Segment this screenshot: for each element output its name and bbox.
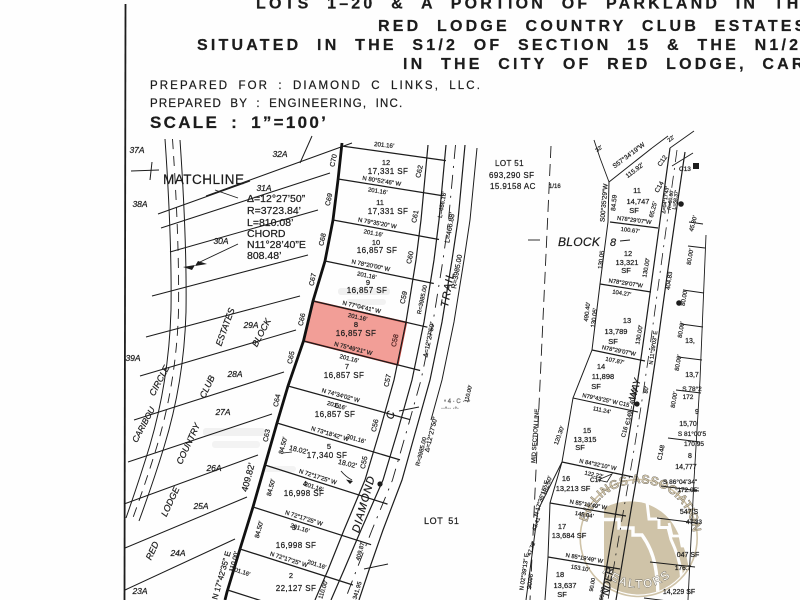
svg-text:38A: 38A xyxy=(132,199,147,209)
svg-text:16,857 SF: 16,857 SF xyxy=(347,286,388,295)
svg-text:11: 11 xyxy=(376,198,384,207)
svg-text:SITUATED IN THE S1/2 OF SECTIO: SITUATED IN THE S1/2 OF SECTION 15 & THE… xyxy=(197,37,800,54)
svg-text:16,857 SF: 16,857 SF xyxy=(315,410,356,419)
svg-text:12: 12 xyxy=(624,249,632,258)
svg-text:693,290 SF: 693,290 SF xyxy=(489,171,534,180)
svg-text:RED LODGE COUNTRY CLUB ESTATES: RED LODGE COUNTRY CLUB ESTATES xyxy=(378,18,800,35)
svg-text:BLOCK: BLOCK xyxy=(558,235,601,249)
svg-text:8: 8 xyxy=(610,237,617,249)
svg-text:13,789: 13,789 xyxy=(605,327,628,336)
svg-text:47’33: 47’33 xyxy=(686,519,702,526)
svg-text:MATCHLINE: MATCHLINE xyxy=(163,172,245,187)
svg-text:14: 14 xyxy=(597,362,605,371)
svg-text:5: 5 xyxy=(327,442,331,451)
svg-text:172.05’: 172.05’ xyxy=(677,487,699,494)
svg-text:Δ=12°27’50”: Δ=12°27’50” xyxy=(247,193,306,205)
svg-text:S 78°2: S 78°2 xyxy=(682,385,702,393)
svg-text:7: 7 xyxy=(345,362,349,371)
svg-text:13,7: 13,7 xyxy=(685,372,699,379)
svg-text:SF: SF xyxy=(629,206,639,215)
svg-text:SCALE : 1”=100’: SCALE : 1”=100’ xyxy=(150,113,328,132)
svg-text:SF: SF xyxy=(557,590,567,599)
svg-text:PREPARED BY : ENGINEERING, INC: PREPARED BY : ENGINEERING, INC. xyxy=(150,98,403,110)
svg-text:S 86°04’34”: S 86°04’34” xyxy=(663,478,697,486)
svg-text:16,857 SF: 16,857 SF xyxy=(357,246,398,255)
svg-text:SF: SF xyxy=(591,382,601,391)
svg-text:13,: 13, xyxy=(685,338,695,345)
svg-text:29A: 29A xyxy=(242,320,258,330)
svg-text:C13: C13 xyxy=(679,166,691,173)
svg-text:14,777: 14,777 xyxy=(675,464,697,471)
svg-text:17,331 SF: 17,331 SF xyxy=(368,167,409,176)
svg-text:25A: 25A xyxy=(192,501,208,511)
svg-text:S 81°00’5: S 81°00’5 xyxy=(678,430,707,438)
svg-text:30A: 30A xyxy=(213,236,228,246)
svg-text:26A: 26A xyxy=(205,463,221,473)
svg-text:16,857 SF: 16,857 SF xyxy=(336,329,377,338)
svg-text:SF: SF xyxy=(621,266,631,275)
svg-text:12: 12 xyxy=(382,158,390,167)
svg-text:172: 172 xyxy=(683,394,694,401)
svg-text:15,70: 15,70 xyxy=(679,421,697,428)
svg-text:32A: 32A xyxy=(272,149,287,159)
svg-text:17: 17 xyxy=(558,522,566,531)
svg-text:15.9158 AC: 15.9158 AC xyxy=(490,182,536,191)
svg-text:31A: 31A xyxy=(256,183,271,193)
svg-text:170.95: 170.95 xyxy=(684,441,704,448)
svg-text:16,857 SF: 16,857 SF xyxy=(324,371,365,380)
svg-text:··•·· ·•·: ··•·· ·•· xyxy=(441,406,459,412)
svg-text:2: 2 xyxy=(289,571,293,580)
svg-text:84.59: 84.59 xyxy=(610,194,618,211)
svg-text:R=3723.84’: R=3723.84’ xyxy=(247,205,301,217)
svg-text:18: 18 xyxy=(556,570,564,579)
svg-text:8: 8 xyxy=(688,453,692,460)
svg-text:547 S: 547 S xyxy=(680,509,699,516)
svg-text:SF: SF xyxy=(608,337,618,346)
svg-text:176.7: 176.7 xyxy=(675,565,692,572)
svg-text:13,684 SF: 13,684 SF xyxy=(552,531,587,540)
svg-text:LOTS 1–20 & A PORTION OF PARKL: LOTS 1–20 & A PORTION OF PARKLAND IN TH xyxy=(256,0,800,13)
svg-text:PREPARED FOR : DIAMOND C LINKS: PREPARED FOR : DIAMOND C LINKS, LLC. xyxy=(150,80,482,92)
svg-text:SF: SF xyxy=(575,443,585,452)
svg-text:9: 9 xyxy=(695,409,699,416)
svg-text:8: 8 xyxy=(354,320,358,329)
svg-text:14,229 SF: 14,229 SF xyxy=(663,589,695,596)
svg-text:LOT 51: LOT 51 xyxy=(424,516,459,526)
svg-text:13,637: 13,637 xyxy=(554,581,577,590)
svg-text:11,898: 11,898 xyxy=(592,372,614,381)
svg-text:13: 13 xyxy=(623,316,631,325)
svg-text:24A: 24A xyxy=(169,548,185,558)
svg-text:28A: 28A xyxy=(226,369,242,379)
svg-text:23A: 23A xyxy=(131,586,147,596)
svg-text:39A: 39A xyxy=(125,353,140,363)
svg-text:27A: 27A xyxy=(214,407,230,417)
svg-text:LOT 51: LOT 51 xyxy=(495,159,524,168)
svg-text:16,998 SF: 16,998 SF xyxy=(276,541,317,550)
svg-text:808.48’: 808.48’ xyxy=(247,250,281,262)
svg-text:80’: 80’ xyxy=(644,386,651,394)
svg-text:14,747: 14,747 xyxy=(627,197,650,206)
svg-text:22,127 SF: 22,127 SF xyxy=(276,584,317,593)
svg-text:11: 11 xyxy=(633,186,641,195)
svg-text:16: 16 xyxy=(562,474,570,483)
svg-text:15: 15 xyxy=(583,426,591,435)
svg-text:1/16: 1/16 xyxy=(549,184,561,190)
svg-text:17,331 SF: 17,331 SF xyxy=(368,207,409,216)
svg-text:37A: 37A xyxy=(129,145,144,155)
svg-text:047 SF: 047 SF xyxy=(677,552,700,559)
svg-text:13,213 SF: 13,213 SF xyxy=(556,484,591,493)
svg-text:IN THE CITY OF RED LODGE, CARB: IN THE CITY OF RED LODGE, CARBON xyxy=(403,56,800,73)
